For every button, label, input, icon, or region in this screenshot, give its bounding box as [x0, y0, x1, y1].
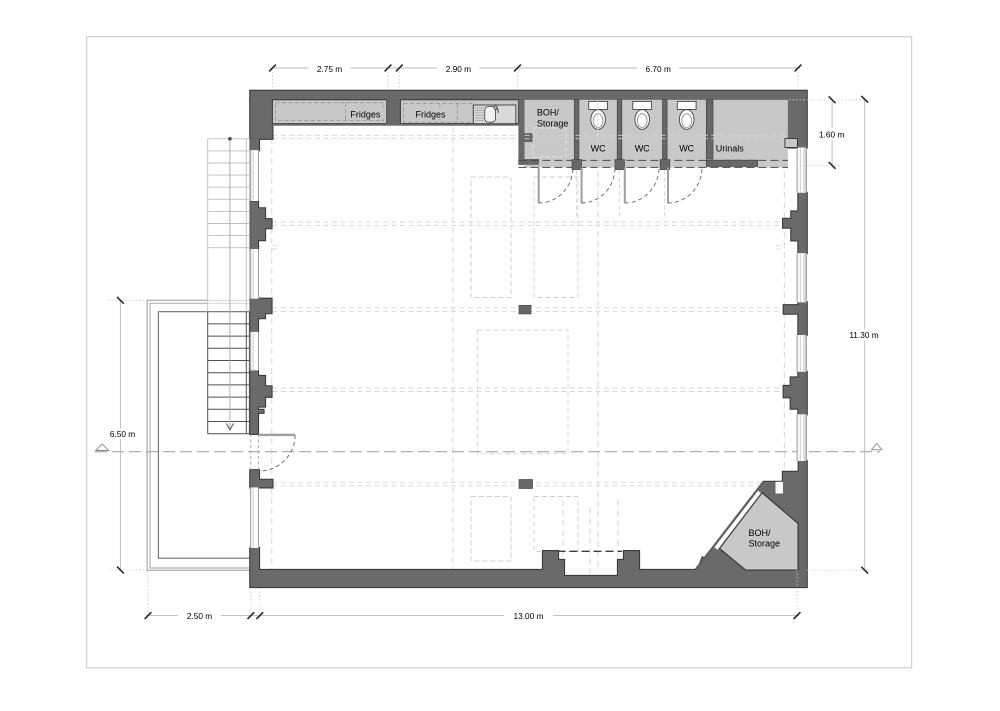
svg-text:6.50 m: 6.50 m — [110, 429, 135, 439]
svg-text:Fridges: Fridges — [350, 110, 381, 120]
svg-text:BOH/: BOH/ — [537, 108, 560, 118]
svg-text:Urinals: Urinals — [716, 144, 745, 154]
svg-text:6.70 m: 6.70 m — [646, 64, 671, 74]
svg-text:2.50 m: 2.50 m — [187, 611, 212, 621]
svg-text:WC: WC — [635, 144, 650, 154]
svg-text:2.75 m: 2.75 m — [317, 64, 342, 74]
svg-text:13.00 m: 13.00 m — [514, 611, 544, 621]
svg-text:WC: WC — [591, 144, 606, 154]
svg-text:BOH/: BOH/ — [749, 528, 772, 538]
svg-text:Storage: Storage — [537, 118, 569, 128]
svg-text:Fridges: Fridges — [415, 110, 446, 120]
svg-text:2.90 m: 2.90 m — [446, 64, 471, 74]
svg-text:1.60 m: 1.60 m — [819, 129, 844, 139]
svg-text:Storage: Storage — [749, 539, 781, 549]
svg-text:11.30 m: 11.30 m — [849, 330, 878, 340]
svg-text:WC: WC — [679, 144, 694, 154]
